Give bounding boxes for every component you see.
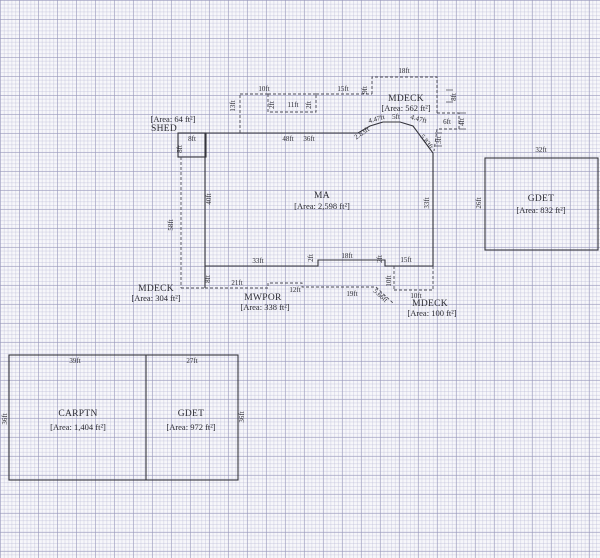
dim-porch-21: 21ft [231,279,242,287]
dim-nook-height: 4ft [458,118,466,126]
dim-br-deck-left: 10ft [385,275,393,286]
left-deck-outline [181,157,205,288]
dim-left-lower: 8ft [204,275,212,283]
dim-ma-left: 40ft [205,193,213,204]
dim-carport-width: 39ft [69,357,80,365]
dim-notch-left: 2ft [268,101,276,109]
dim-porch-diag: 5.66ft [372,287,390,304]
dim-top-seg-15: 15ft [337,85,348,93]
bottom-right-deck-outline [394,266,433,290]
dim-bottom-18: 18ft [341,252,352,260]
dim-top-deck-left: 9ft [361,86,369,94]
top-deck-area: [Area: 562 ft²] [381,103,430,113]
dim-gdet-bottom-height: 36ft [238,411,246,422]
garage-right-area: [Area: 832 ft²] [516,205,565,215]
dim-gdet-right-height: 26ft [475,197,483,208]
dim-diag-c: 5ft [392,113,400,121]
dim-notch-right: 2ft [305,101,313,109]
garage-right-outline [485,158,598,250]
dim-bottom-33: 33ft [252,257,263,265]
dim-porch-19: 19ft [346,290,357,298]
dim-nook-width: 6ft [443,118,451,126]
dim-porch-12: 12ft [289,286,300,294]
dim-bottom-15: 15ft [400,256,411,264]
garage-bottom-label: GDET [178,409,205,419]
dim-gdet-bottom-width: 27ft [186,357,197,365]
dim-top-wall-a: 48ft [282,135,293,143]
main-area-label: MA [314,191,330,201]
shed-label: SHED [151,124,177,134]
garage-bottom-area: [Area: 972 ft²] [166,422,215,432]
carport-area: [Area: 1,404 ft²] [50,422,106,432]
dim-top-deck-right: 8ft [450,93,458,101]
dim-ma-right: 33ft [423,197,431,208]
dim-diag-e: 5.83ft [418,133,435,151]
garage-right-label: GDET [528,194,555,204]
left-deck-area: [Area: 304 ft²] [131,293,180,303]
dim-bottom-step-left: 2ft [307,254,315,262]
dim-top-seg-11: 11ft [287,101,298,109]
dim-top-wall-b: 36ft [303,135,314,143]
dim-nook-below: 3ft [435,136,443,144]
dim-shed-width: 8ft [188,135,196,143]
dim-top-seg-10: 10ft [258,85,269,93]
br-deck-area: [Area: 100 ft²] [407,308,456,318]
shed-area: [Area: 64 ft²] [150,114,195,124]
porch-area: [Area: 338 ft²] [240,302,289,312]
dim-bottom-step-right: 2ft [376,255,384,263]
floor-plan-sketch: 18ft MDECK [Area: 562 ft²] 9ft 8ft 6ft 4… [0,0,600,558]
dim-diag-d: 4.47ft [409,113,427,125]
dim-step-vertical: 13ft [229,100,237,111]
dim-diag-a: 2.83ft [353,125,371,141]
carport-label: CARPTN [58,409,97,419]
dim-carport-height: 36ft [1,413,9,424]
dim-left-deck-height: 58ft [167,219,175,230]
dim-gdet-right-width: 32ft [535,146,546,154]
dim-shed-height: 8ft [176,145,184,153]
main-area-area: [Area: 2,598 ft²] [294,201,350,211]
dim-top-deck-width: 18ft [398,67,409,75]
dim-diag-b: 4.47ft [367,113,385,125]
